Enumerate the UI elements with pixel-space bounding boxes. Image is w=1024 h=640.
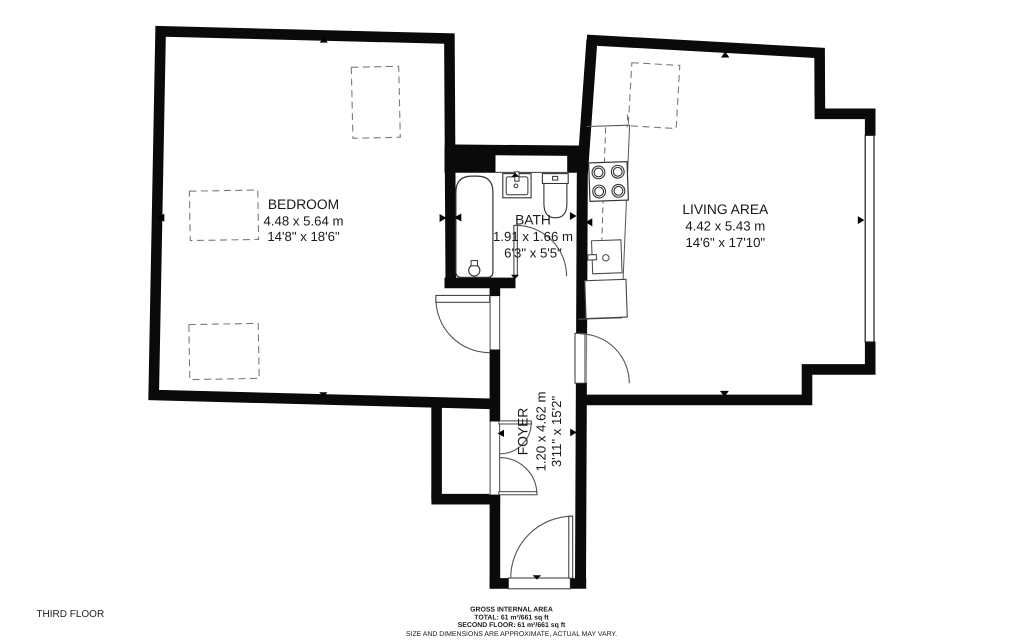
svg-text:BATH: BATH [515,213,551,228]
svg-text:3'11" x 15'2": 3'11" x 15'2" [549,396,564,468]
svg-text:4.42 x 5.43 m: 4.42 x 5.43 m [685,219,765,234]
svg-text:1.91 x 1.66 m: 1.91 x 1.66 m [493,229,573,244]
svg-text:14'6" x 17'10": 14'6" x 17'10" [685,235,765,250]
svg-text:SECOND FLOOR: 61 m²/661 sq ft: SECOND FLOOR: 61 m²/661 sq ft [458,622,566,629]
svg-text:GROSS INTERNAL AREA: GROSS INTERNAL AREA [470,607,553,614]
svg-text:6'3" x 5'5": 6'3" x 5'5" [504,246,562,261]
svg-text:FOYER: FOYER [516,408,531,456]
svg-text:4.48 x 5.64 m: 4.48 x 5.64 m [264,213,344,228]
svg-text:TOTAL: 61 m²/661 sq ft: TOTAL: 61 m²/661 sq ft [474,614,549,621]
svg-text:BEDROOM: BEDROOM [268,197,339,212]
svg-text:LIVING AREA: LIVING AREA [682,202,769,217]
svg-text:THIRD FLOOR: THIRD FLOOR [36,609,104,620]
svg-text:SIZE AND DIMENSIONS ARE APPROX: SIZE AND DIMENSIONS ARE APPROXIMATE, ACT… [406,631,617,638]
svg-text:1.20 x 4.62 m: 1.20 x 4.62 m [533,392,548,472]
svg-text:14'8" x 18'6": 14'8" x 18'6" [267,229,340,244]
